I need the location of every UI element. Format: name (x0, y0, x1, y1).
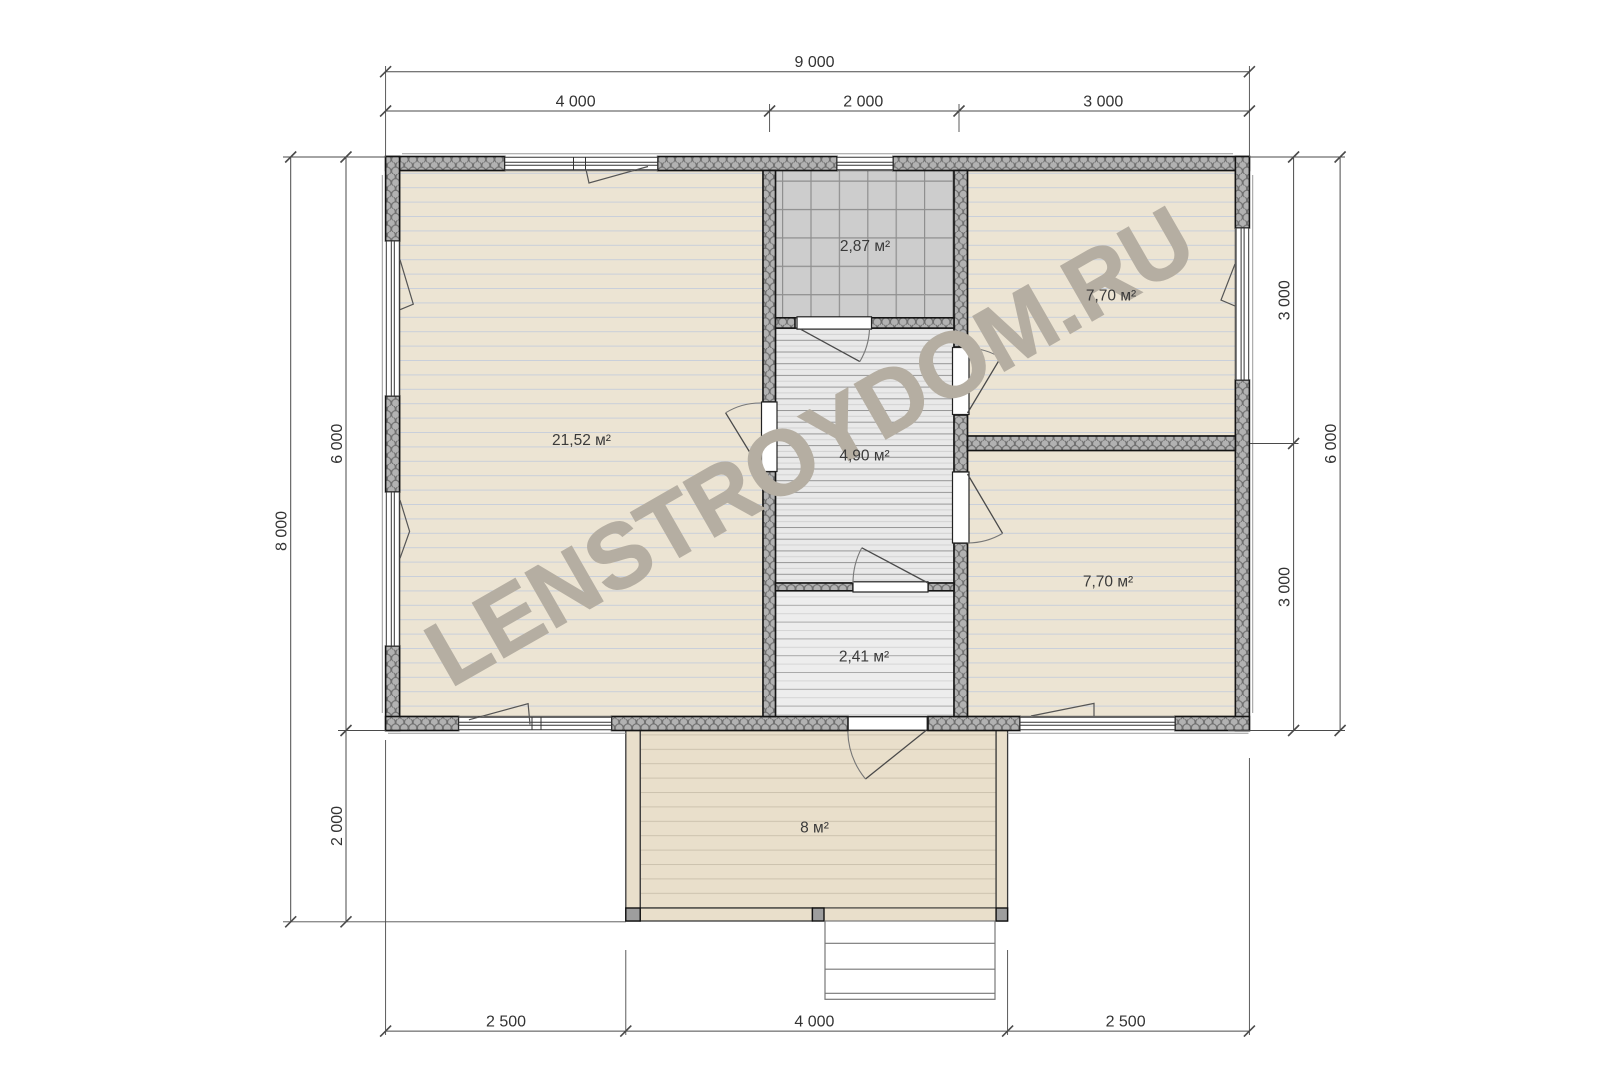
svg-text:2,41 м²: 2,41 м² (839, 649, 889, 666)
svg-text:2 000: 2 000 (329, 806, 346, 846)
svg-text:9 000: 9 000 (794, 54, 834, 71)
svg-text:3 000: 3 000 (1276, 280, 1293, 320)
svg-text:4 000: 4 000 (556, 94, 596, 111)
svg-text:3 000: 3 000 (1276, 567, 1293, 607)
svg-text:2 000: 2 000 (843, 94, 883, 111)
svg-text:2 500: 2 500 (1106, 1014, 1146, 1031)
svg-text:21,52 м²: 21,52 м² (552, 432, 611, 449)
svg-text:4 000: 4 000 (794, 1014, 834, 1031)
svg-text:6 000: 6 000 (1323, 424, 1340, 464)
svg-text:4,90 м²: 4,90 м² (839, 448, 889, 465)
svg-text:2,87 м²: 2,87 м² (840, 238, 890, 255)
svg-text:3 000: 3 000 (1083, 94, 1123, 111)
svg-text:7,70 м²: 7,70 м² (1086, 288, 1136, 305)
svg-text:2 500: 2 500 (486, 1014, 526, 1031)
svg-text:7,70 м²: 7,70 м² (1083, 574, 1133, 591)
svg-text:8 000: 8 000 (274, 511, 291, 551)
svg-text:8 м²: 8 м² (800, 820, 829, 837)
svg-text:6 000: 6 000 (329, 424, 346, 464)
